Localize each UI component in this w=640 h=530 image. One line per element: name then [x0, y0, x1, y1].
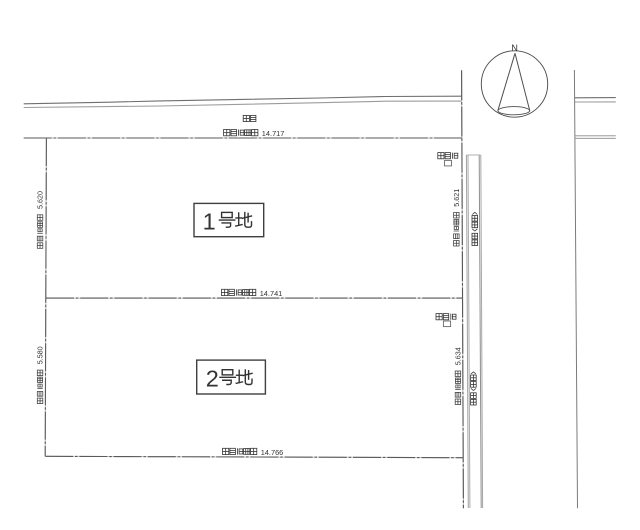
svg-text:2: 2 — [206, 366, 219, 392]
svg-text:14.717: 14.717 — [262, 129, 285, 138]
svg-text:N: N — [511, 43, 518, 53]
svg-text:5.621: 5.621 — [452, 189, 461, 207]
svg-text:1: 1 — [203, 208, 216, 234]
svg-text:5.620: 5.620 — [36, 191, 45, 209]
svg-text:5.634: 5.634 — [454, 347, 463, 365]
svg-text:14.766: 14.766 — [261, 448, 284, 457]
svg-text:5.580: 5.580 — [36, 346, 45, 364]
svg-text:14.741: 14.741 — [260, 289, 283, 298]
